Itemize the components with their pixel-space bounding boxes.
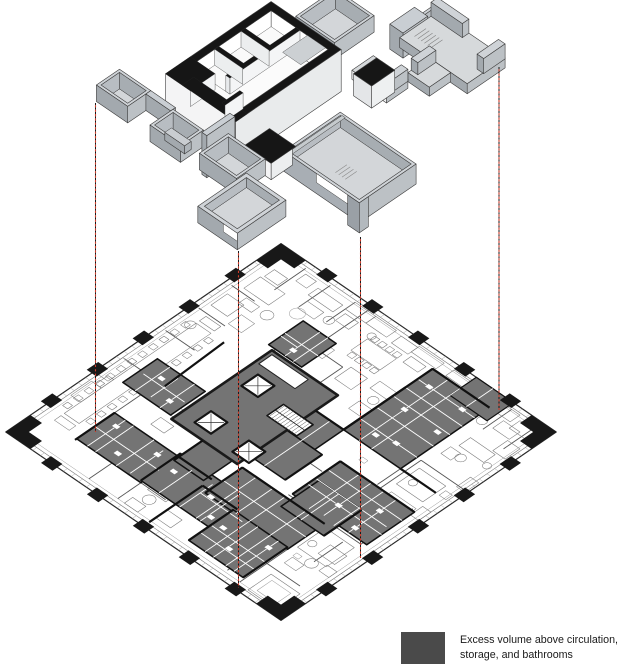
svg-text:Excess volume above circulatio: Excess volume above circulation, [460, 634, 618, 646]
svg-text:storage, and bathrooms: storage, and bathrooms [460, 649, 573, 661]
